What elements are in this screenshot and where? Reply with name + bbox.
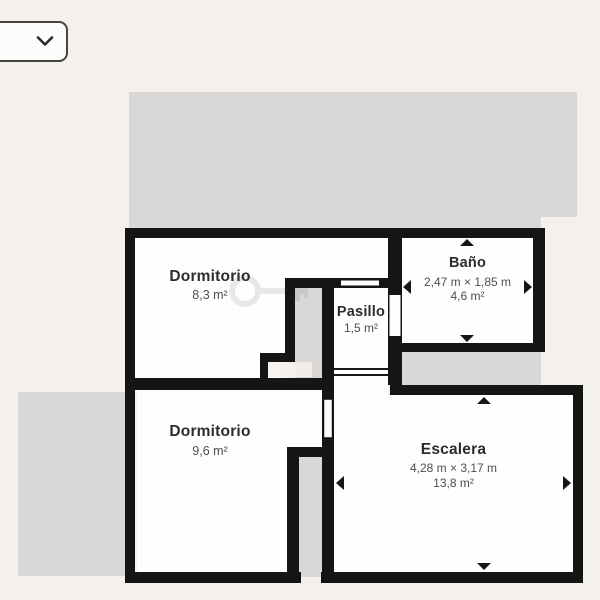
threshold-line-2 bbox=[334, 374, 388, 376]
adjacent-area-left bbox=[18, 392, 125, 576]
stair-void-lower bbox=[299, 457, 322, 577]
chevron-down-icon bbox=[36, 36, 54, 47]
room-stairs[interactable] bbox=[334, 395, 573, 572]
window-hallway-top bbox=[341, 281, 379, 286]
floorplan-viewer: Dormitorio 8,3 m² Baño 2,47 m × 1,85 m 4… bbox=[0, 0, 600, 600]
watermark-highlight bbox=[268, 362, 312, 377]
door-dormitorio-2 bbox=[324, 399, 333, 438]
shaft-below-bathroom bbox=[395, 350, 541, 385]
hallway-passage[interactable] bbox=[334, 370, 388, 395]
threshold-line-1 bbox=[334, 368, 388, 370]
adjacent-area-top-right bbox=[541, 92, 577, 217]
floor-selector-dropdown[interactable] bbox=[0, 21, 68, 62]
adjacent-area-top bbox=[129, 92, 541, 228]
room-hallway[interactable] bbox=[334, 288, 388, 370]
room-bathroom[interactable] bbox=[402, 238, 533, 343]
door-bathroom bbox=[390, 295, 401, 336]
room-dormitorio-1[interactable] bbox=[132, 237, 388, 278]
floorplan-canvas bbox=[0, 0, 600, 600]
